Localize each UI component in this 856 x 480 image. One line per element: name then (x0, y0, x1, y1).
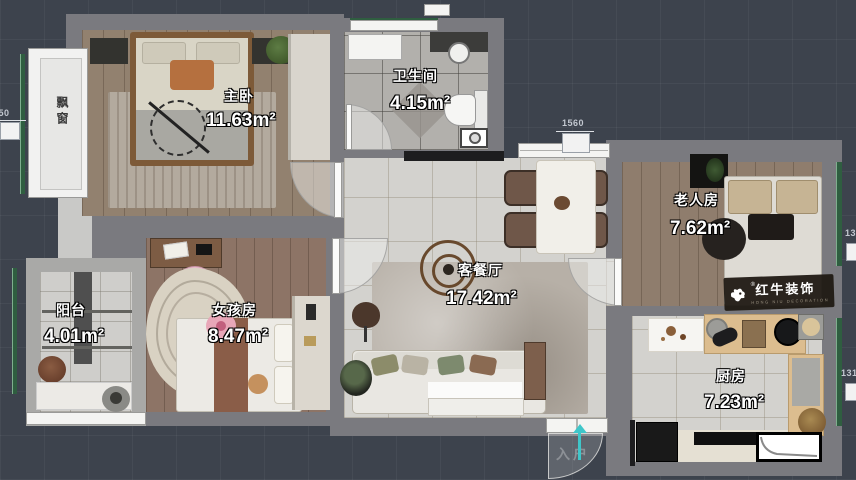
dimension-right-upper: 13 (845, 228, 856, 238)
girl-wardrobe-item2 (304, 336, 316, 346)
dimension-right-upper-tick (846, 243, 856, 261)
wall-balcony-bottom (26, 412, 146, 425)
master-door-leaf[interactable] (334, 162, 342, 218)
wall-black-entry-side (630, 420, 635, 466)
label-elder-name: 老人房 (674, 190, 719, 210)
bathroom-sink[interactable] (348, 34, 402, 60)
kitchen-mat (648, 318, 704, 352)
dimension-top-tick (562, 133, 590, 153)
label-master-area: 11.63m² (206, 110, 276, 132)
bull-logo-icon (729, 285, 748, 304)
dimension-top-line (556, 131, 594, 132)
girl-wardrobe-item (306, 304, 316, 320)
master-bed-accent-pillow (170, 60, 214, 90)
floor-lamp-stem (364, 326, 367, 342)
washing-machine[interactable] (448, 42, 470, 64)
label-kitchen-area: 7.23m² (704, 392, 764, 414)
girl-bed-pillow-1 (274, 324, 294, 362)
floor-drain-circle (469, 132, 481, 144)
girl-desk-laptop (196, 244, 212, 255)
elder-window-glass (836, 162, 842, 266)
entry-arrow-icon (578, 432, 581, 460)
sofa-pillow-3 (437, 354, 465, 375)
elder-pillow-left (728, 180, 772, 214)
stove[interactable] (694, 432, 758, 445)
balcony-plant-pot (110, 392, 122, 404)
master-nightstand-left[interactable] (90, 38, 128, 64)
girl-bed-pillow-2 (274, 366, 294, 404)
elder-art-plant (706, 158, 724, 182)
elder-dark-cushion (748, 214, 794, 240)
kitchen-right-mat (792, 358, 820, 406)
label-balcony-name: 阳台 (56, 300, 86, 320)
logo-brand-text: 红牛装饰 (755, 281, 816, 298)
vent-diagram-box (756, 432, 822, 462)
label-master-name: 主卧 (224, 86, 254, 106)
bathroom-window-glass (350, 18, 438, 20)
teddy-bear (248, 374, 268, 394)
dimension-right-lower: 131 (841, 368, 856, 378)
cutting-board (742, 320, 766, 348)
master-wardrobe[interactable] (288, 34, 330, 160)
dimension-right-lower-tick (845, 383, 856, 401)
label-elder-area: 7.62m² (670, 218, 730, 240)
label-balcony-area: 4.01m² (44, 326, 104, 348)
dimension-top: 1560 (562, 118, 584, 128)
label-living-area: 17.42m² (446, 288, 517, 310)
entry-arrow-head (573, 424, 587, 433)
dimension-left: 350 (0, 108, 10, 118)
tv-console[interactable] (428, 398, 524, 416)
dimension-left-line (0, 120, 26, 121)
floor-lamp[interactable] (352, 302, 380, 328)
label-girl-area: 8.47m² (208, 326, 268, 348)
entry-label: 入户 (556, 444, 590, 464)
elder-door-leaf[interactable] (614, 258, 622, 306)
bay-window-glass (20, 54, 25, 194)
label-girl-name: 女孩房 (212, 300, 257, 320)
dimension-left-tick (0, 122, 20, 140)
sofa-side-table[interactable] (524, 342, 546, 400)
wall-black-under-bathroom (404, 151, 504, 161)
elder-pillow-right (776, 180, 818, 214)
label-living-name: 客餐厅 (458, 260, 503, 280)
dining-table-bowl (554, 196, 570, 210)
sofa-pillow-2 (401, 354, 429, 375)
balcony-glass (12, 268, 17, 394)
living-label-dot (443, 264, 454, 275)
label-bathroom-name: 卫生间 (393, 66, 438, 86)
toilet-tank (474, 90, 488, 130)
bathroom-door-leaf[interactable] (346, 104, 352, 150)
kitchen-bowl (802, 318, 820, 336)
label-kitchen-name: 厨房 (716, 366, 746, 386)
kitchen-mat-deco (666, 326, 676, 336)
girl-door-leaf[interactable] (332, 238, 340, 294)
bay-window-label: 飘窗 (54, 96, 71, 128)
living-plant (340, 360, 372, 396)
fridge[interactable] (636, 422, 678, 462)
top-wall-tab (424, 4, 450, 16)
brand-logo: ®红牛装饰 HONG NIU DECORATION (723, 274, 834, 311)
label-bathroom-area: 4.15m² (390, 93, 450, 115)
bathroom-window (350, 20, 438, 31)
floor-plan-canvas: 飘窗 (0, 0, 856, 480)
balcony-basket (38, 356, 66, 383)
